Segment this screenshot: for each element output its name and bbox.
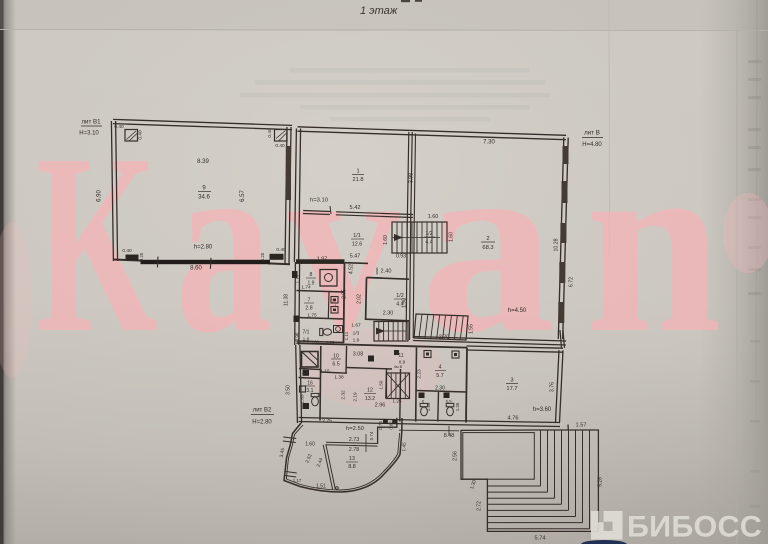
svg-text:2.02: 2.02 — [357, 294, 363, 304]
svg-text:1.75: 1.75 — [307, 313, 317, 319]
svg-text:1.97: 1.97 — [317, 257, 328, 263]
svg-text:2.95: 2.95 — [342, 289, 348, 299]
svg-text:1/2: 1/2 — [396, 293, 404, 299]
svg-text:лит В2: лит В2 — [253, 408, 272, 414]
svg-text:7: 7 — [308, 298, 311, 304]
svg-text:5.42: 5.42 — [350, 205, 361, 211]
svg-text:21.8: 21.8 — [353, 177, 364, 183]
svg-text:10.28: 10.28 — [554, 238, 560, 251]
svg-text:лит В: лит В — [584, 130, 600, 137]
svg-text:12: 12 — [367, 388, 373, 394]
svg-text:5.28: 5.28 — [598, 477, 604, 487]
svg-text:0.40: 0.40 — [275, 143, 285, 149]
svg-text:1.17: 1.17 — [293, 478, 302, 483]
svg-text:7.30: 7.30 — [483, 140, 495, 146]
svg-text:1.55: 1.55 — [469, 324, 475, 334]
svg-text:1/3: 1/3 — [353, 331, 360, 337]
svg-text:2.40: 2.40 — [381, 269, 392, 275]
svg-text:2.32: 2.32 — [341, 390, 347, 400]
svg-text:4: 4 — [439, 365, 442, 371]
svg-text:12.6: 12.6 — [352, 242, 363, 248]
svg-text:1: 1 — [356, 169, 359, 175]
svg-text:1.57: 1.57 — [576, 423, 587, 429]
svg-text:0.96: 0.96 — [295, 332, 300, 341]
svg-text:4.52: 4.52 — [349, 264, 355, 274]
svg-text:1.67: 1.67 — [351, 323, 361, 329]
svg-text:5.7: 5.7 — [436, 373, 444, 379]
svg-text:БИБОСС: БИБОСС — [627, 511, 762, 544]
svg-text:0.9: 0.9 — [399, 360, 406, 365]
svg-text:2: 2 — [486, 236, 489, 242]
svg-text:1.78: 1.78 — [326, 340, 335, 345]
svg-text:8.60: 8.60 — [190, 266, 202, 272]
svg-text:1.11: 1.11 — [344, 331, 349, 340]
svg-text:Н=4.80: Н=4.80 — [582, 142, 602, 148]
svg-text:1.39: 1.39 — [426, 402, 431, 411]
svg-text:h=2.80: h=2.80 — [194, 245, 213, 251]
svg-text:2.23: 2.23 — [417, 369, 423, 379]
svg-text:1.9: 1.9 — [353, 338, 360, 344]
svg-text:2.25: 2.25 — [322, 419, 332, 425]
svg-text:0.20: 0.20 — [260, 252, 265, 261]
svg-text:6.90: 6.90 — [97, 190, 103, 202]
svg-text:2.96: 2.96 — [375, 403, 386, 409]
svg-text:1.6: 1.6 — [303, 337, 310, 343]
svg-text:n: n — [585, 100, 722, 387]
svg-text:2.30: 2.30 — [435, 386, 445, 392]
svg-text:0.82: 0.82 — [389, 421, 394, 430]
svg-text:4м В: 4м В — [394, 365, 403, 369]
svg-text:Н=2.80: Н=2.80 — [252, 420, 272, 426]
svg-text:8: 8 — [310, 272, 313, 278]
svg-text:1.60: 1.60 — [383, 235, 389, 245]
svg-text:2.8: 2.8 — [305, 306, 312, 312]
svg-text:лит В1: лит В1 — [81, 119, 101, 126]
svg-text:5/1: 5/1 — [446, 400, 453, 406]
svg-text:1.38: 1.38 — [334, 375, 344, 381]
svg-text:0.20: 0.20 — [139, 252, 144, 261]
svg-text:1.51: 1.51 — [316, 484, 326, 490]
svg-text:1.15: 1.15 — [320, 369, 330, 375]
svg-text:h=2.50: h=2.50 — [346, 426, 364, 432]
svg-text:1.35: 1.35 — [455, 402, 460, 411]
svg-text:3.76: 3.76 — [550, 382, 556, 392]
svg-text:11.38: 11.38 — [284, 294, 290, 306]
svg-text:1.60: 1.60 — [305, 442, 315, 448]
svg-text:1.61: 1.61 — [311, 340, 320, 345]
svg-text:8.8: 8.8 — [348, 464, 355, 470]
svg-text:2.70: 2.70 — [439, 335, 450, 341]
svg-text:34.6: 34.6 — [198, 195, 210, 201]
svg-text:h=4.50: h=4.50 — [508, 308, 527, 314]
svg-text:4.76: 4.76 — [508, 416, 519, 422]
svg-text:2.19: 2.19 — [353, 392, 359, 402]
svg-text:11: 11 — [398, 353, 403, 359]
svg-text:1 этаж: 1 этаж — [360, 5, 398, 17]
svg-text:1.90: 1.90 — [402, 298, 408, 308]
svg-text:1.25: 1.25 — [393, 399, 402, 404]
svg-text:1/1: 1/1 — [353, 233, 361, 239]
svg-text:0.74: 0.74 — [378, 421, 383, 430]
svg-text:0.40: 0.40 — [276, 247, 286, 253]
svg-text:1.50: 1.50 — [379, 380, 384, 389]
svg-text:13: 13 — [349, 456, 355, 462]
svg-text:0.40: 0.40 — [138, 130, 144, 140]
svg-text:5.74: 5.74 — [535, 536, 546, 542]
svg-text:a: a — [175, 101, 272, 387]
svg-text:2.83: 2.83 — [300, 394, 305, 403]
svg-text:3: 3 — [510, 378, 513, 384]
svg-text:6.5: 6.5 — [332, 362, 339, 368]
svg-text:1.11: 1.11 — [296, 274, 301, 283]
svg-text:3.98: 3.98 — [409, 173, 415, 183]
svg-text:1.60: 1.60 — [428, 214, 439, 220]
svg-text:1.60: 1.60 — [449, 232, 455, 242]
svg-text:h=3.10: h=3.10 — [310, 198, 328, 204]
svg-text:0.74: 0.74 — [369, 431, 374, 440]
svg-text:0.40: 0.40 — [122, 248, 132, 254]
svg-text:3.1: 3.1 — [307, 388, 314, 394]
svg-text:8.48: 8.48 — [444, 433, 455, 439]
svg-text:5: 5 — [422, 400, 425, 406]
svg-text:8.39: 8.39 — [197, 159, 209, 165]
svg-text:7/1: 7/1 — [303, 330, 310, 336]
svg-text:0.40: 0.40 — [267, 128, 273, 138]
svg-text:68.3: 68.3 — [482, 245, 493, 251]
svg-text:K: K — [36, 102, 158, 387]
svg-text:h=3.60: h=3.60 — [533, 407, 552, 413]
svg-text:6.72: 6.72 — [569, 277, 575, 287]
svg-text:0.93: 0.93 — [396, 254, 406, 260]
svg-text:1.45: 1.45 — [401, 442, 408, 452]
svg-text:3.50: 3.50 — [286, 385, 292, 395]
svg-text:5.47: 5.47 — [350, 254, 361, 260]
svg-text:2.72: 2.72 — [477, 501, 483, 511]
svg-text:2.73: 2.73 — [349, 437, 360, 443]
svg-text:2.56: 2.56 — [453, 451, 459, 461]
svg-text:Н=3.10: Н=3.10 — [79, 131, 99, 137]
svg-text:2.30: 2.30 — [383, 311, 394, 317]
svg-text:1.62: 1.62 — [332, 298, 337, 307]
svg-text:3.08: 3.08 — [353, 352, 364, 358]
svg-text:2.78: 2.78 — [349, 447, 360, 453]
svg-text:10: 10 — [333, 354, 339, 360]
svg-text:4.4: 4.4 — [425, 240, 432, 246]
svg-text:1.74: 1.74 — [301, 285, 311, 291]
svg-text:13.2: 13.2 — [365, 396, 375, 402]
svg-text:6.57: 6.57 — [240, 190, 246, 202]
svg-text:17.7: 17.7 — [506, 386, 517, 392]
svg-text:0.40: 0.40 — [114, 124, 124, 130]
svg-text:1/2: 1/2 — [425, 231, 432, 237]
svg-text:16: 16 — [307, 381, 313, 387]
